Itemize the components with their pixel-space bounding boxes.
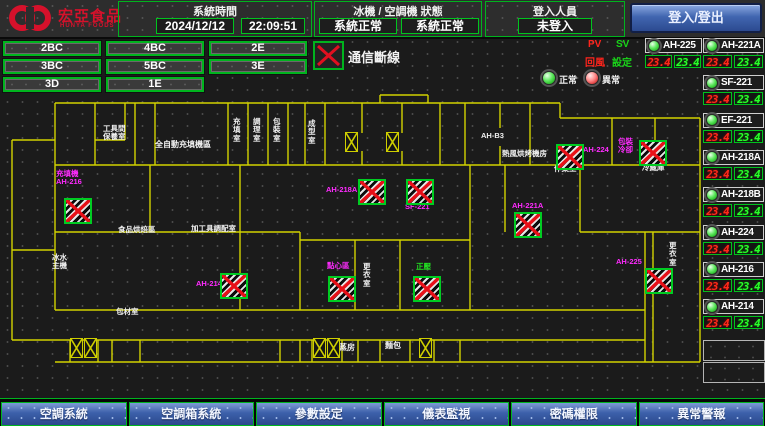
login-logout-button[interactable]: 登入/登出 <box>630 3 762 33</box>
pv-header: PV <box>588 39 601 50</box>
company-logo <box>6 3 54 38</box>
system-date-value: 2024/12/12 <box>156 18 234 34</box>
unit-status-lamp-icon <box>706 263 718 275</box>
pv-sub-label: 回風 <box>585 54 605 69</box>
comm-loss-icon <box>313 41 344 70</box>
unit-row-sf-221[interactable]: SF-221 <box>703 75 764 90</box>
hunya-logo-icon <box>6 3 54 33</box>
alarm-x-icon[interactable] <box>639 140 667 166</box>
floorplan-label: 冰水 主機 <box>52 254 67 271</box>
unit-name: AH-216 <box>721 264 754 275</box>
unit-row-ah-214[interactable]: AH-214 <box>703 299 764 314</box>
unit-pv-value: 23.4 <box>703 92 732 105</box>
unit-sv-value: 23.4 <box>734 316 763 329</box>
floor-button-5bc[interactable]: 5BC <box>106 59 204 74</box>
machine-status-label: 冰機 / 空調機 狀態 <box>315 3 481 19</box>
floorplan-label: AH-B3 <box>481 132 504 140</box>
unit-status-lamp-icon <box>706 114 718 126</box>
unit-name: AH-224 <box>721 227 754 238</box>
alarm-x-icon[interactable] <box>358 179 386 205</box>
floorplan-label: 充 填 室 <box>233 118 241 143</box>
floor-button-1e[interactable]: 1E <box>106 77 204 92</box>
floor-button-4bc[interactable]: 4BC <box>106 41 204 56</box>
nav-button-參數設定[interactable]: 參數設定 <box>256 402 382 426</box>
login-user-label: 登入人員 <box>486 3 624 19</box>
unit-sv-value: 23.4 <box>734 130 763 143</box>
unit-sv-value: 23.4 <box>734 92 763 105</box>
normal-lamp-icon <box>542 71 556 85</box>
unit-row-ah-225[interactable]: AH-225 <box>645 38 702 53</box>
alarm-x-icon[interactable] <box>406 179 434 205</box>
nav-button-空調系統[interactable]: 空調系統 <box>1 402 127 426</box>
chiller-status-value: 系統正常 <box>319 18 397 34</box>
ahu-status-value: 系統正常 <box>401 18 479 34</box>
floorplan-label: 充填機 AH-216 <box>56 170 82 187</box>
alarm-x-icon[interactable] <box>413 276 441 302</box>
unit-sv-value: 23.4 <box>734 279 763 292</box>
abnormal-lamp-icon <box>585 71 599 85</box>
unit-status-lamp-icon <box>706 189 718 201</box>
floor-button-2e[interactable]: 2E <box>209 41 307 56</box>
normal-lamp-label: 正常 <box>559 73 577 86</box>
floorplan-label: AH-224 <box>583 146 609 154</box>
alarm-x-icon[interactable] <box>64 198 92 224</box>
login-user-value: 未登入 <box>518 18 592 34</box>
nav-button-密碼權限[interactable]: 密碼權限 <box>511 402 637 426</box>
floorplan-label: 蒸房 <box>339 344 355 353</box>
sv-header: SV <box>616 39 629 50</box>
login-user-panel: 登入人員 未登入 <box>485 1 625 37</box>
floorplan-label: 正壓 <box>416 263 431 271</box>
floorplan-label: 更 衣 室 <box>669 242 677 267</box>
unit-sv-value: 23.4 <box>734 55 763 68</box>
unit-sv-value: 23.4 <box>734 242 763 255</box>
floor-button-2bc[interactable]: 2BC <box>3 41 101 56</box>
unit-status-lamp-icon <box>706 226 718 238</box>
unit-status-lamp-icon <box>706 301 718 313</box>
unit-name: AH-221A <box>721 40 761 51</box>
unit-sv-value: 23.4 <box>734 167 763 180</box>
nav-button-異常警報[interactable]: 異常警報 <box>639 402 765 426</box>
floorplan-label: AH-218A <box>326 186 357 194</box>
floorplan-label: 包材室 <box>116 308 139 316</box>
empty-unit-slot <box>703 362 765 383</box>
floor-button-3bc[interactable]: 3BC <box>3 59 101 74</box>
system-time-panel: 系統時間 2024/12/12 22:09:51 <box>118 1 312 37</box>
unit-status-lamp-icon <box>706 77 718 89</box>
unit-pv-value: 23.4 <box>703 167 732 180</box>
alarm-x-icon[interactable] <box>645 268 673 294</box>
top-header: 宏亞食品 HUNYA FOODS 系統時間 2024/12/12 22:09:5… <box>0 0 765 39</box>
door-x-icon <box>419 338 432 358</box>
unit-status-lamp-icon <box>648 40 660 52</box>
unit-name: EF-221 <box>721 115 752 126</box>
sv-sub-label: 設定 <box>612 54 632 69</box>
unit-pv-value: 23.4 <box>703 55 732 68</box>
floorplan-label: AH-214 <box>196 280 222 288</box>
system-clock-value: 22:09:51 <box>241 18 305 34</box>
unit-pv-value: 23.4 <box>703 316 732 329</box>
floorplan-label: 調 理 室 <box>253 118 261 143</box>
unit-name: AH-218A <box>721 152 761 163</box>
floorplan-label: 更 衣 室 <box>363 263 371 288</box>
bottom-nav-bar: 空調系統空調箱系統參數設定儀表監視密碼權限異常警報 <box>0 398 765 426</box>
unit-pv-value: 23.4 <box>703 204 732 217</box>
unit-pv-value: 23.4 <box>703 279 732 292</box>
unit-row-ah-218b[interactable]: AH-218B <box>703 187 764 202</box>
floorplan-label: 麵包 <box>385 342 401 351</box>
unit-status-lamp-icon <box>706 151 718 163</box>
system-time-label: 系統時間 <box>119 3 311 19</box>
floorplan-label: 加工具調配室 <box>191 225 236 233</box>
unit-pv-value: 23.4 <box>645 55 672 68</box>
door-x-icon <box>84 338 97 358</box>
unit-name: SF-221 <box>721 77 752 88</box>
unit-row-ef-221[interactable]: EF-221 <box>703 113 764 128</box>
floorplan-label: 包裝 冷卻 <box>618 138 633 155</box>
door-x-icon <box>386 132 399 152</box>
door-x-icon <box>327 338 340 358</box>
floorplan-label: 全自動充填機區 <box>155 141 211 150</box>
floorplan-label: 工具間 保養室 <box>103 125 126 142</box>
floorplan-label: 食品烘焙區 <box>118 226 156 234</box>
unit-status-lamp-icon <box>706 40 718 52</box>
door-x-icon <box>345 132 358 152</box>
brand-name-en: HUNYA FOODS <box>60 23 115 29</box>
unit-row-ah-216[interactable]: AH-216 <box>703 262 764 277</box>
empty-unit-slot <box>703 340 765 361</box>
unit-name: AH-214 <box>721 301 754 312</box>
unit-pv-value: 23.4 <box>703 130 732 143</box>
abnormal-lamp-label: 異常 <box>602 73 620 86</box>
alarm-x-icon[interactable] <box>220 273 248 299</box>
floorplan-label: 包 裝 室 <box>273 118 281 143</box>
unit-pv-value: 23.4 <box>703 242 732 255</box>
floorplan-label: AH-221A <box>512 202 543 210</box>
hmi-screen: 宏亞食品 HUNYA FOODS 系統時間 2024/12/12 22:09:5… <box>0 0 765 426</box>
floorplan-label: 點心區 <box>327 262 350 270</box>
floorplan-label: 成 型 室 <box>308 120 316 145</box>
unit-name: AH-225 <box>663 40 696 51</box>
floor-button-3d[interactable]: 3D <box>3 77 101 92</box>
floorplan-label: 熱風烘烤機房 <box>502 150 547 158</box>
unit-row-ah-224[interactable]: AH-224 <box>703 225 764 240</box>
unit-sv-value: 23.4 <box>674 55 701 68</box>
nav-button-空調箱系統[interactable]: 空調箱系統 <box>129 402 255 426</box>
alarm-x-icon[interactable] <box>556 144 584 170</box>
floor-button-3e[interactable]: 3E <box>209 59 307 74</box>
unit-name: AH-218B <box>721 189 761 200</box>
alarm-x-icon[interactable] <box>514 212 542 238</box>
unit-sv-value: 23.4 <box>734 204 763 217</box>
unit-row-ah-221a[interactable]: AH-221A <box>703 38 764 53</box>
unit-row-ah-218a[interactable]: AH-218A <box>703 150 764 165</box>
nav-button-儀表監視[interactable]: 儀表監視 <box>384 402 510 426</box>
door-x-icon <box>313 338 326 358</box>
comm-loss-label: 通信斷線 <box>348 47 400 66</box>
alarm-x-icon[interactable] <box>328 276 356 302</box>
door-x-icon <box>70 338 83 358</box>
machine-status-panel: 冰機 / 空調機 狀態 系統正常 系統正常 <box>314 1 482 37</box>
floorplan-label: AH-225 <box>616 258 642 266</box>
